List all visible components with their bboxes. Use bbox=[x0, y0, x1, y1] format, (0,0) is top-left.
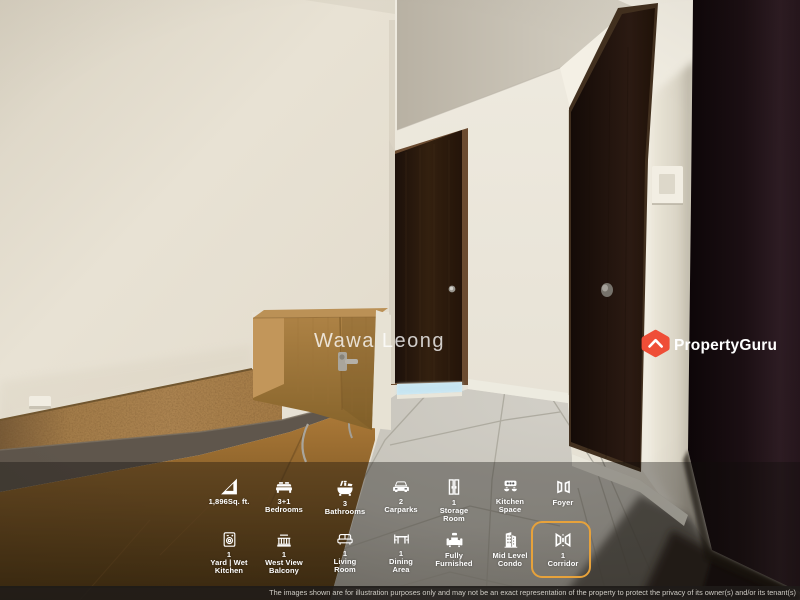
svg-text:PropertyGuru: PropertyGuru bbox=[674, 337, 777, 354]
